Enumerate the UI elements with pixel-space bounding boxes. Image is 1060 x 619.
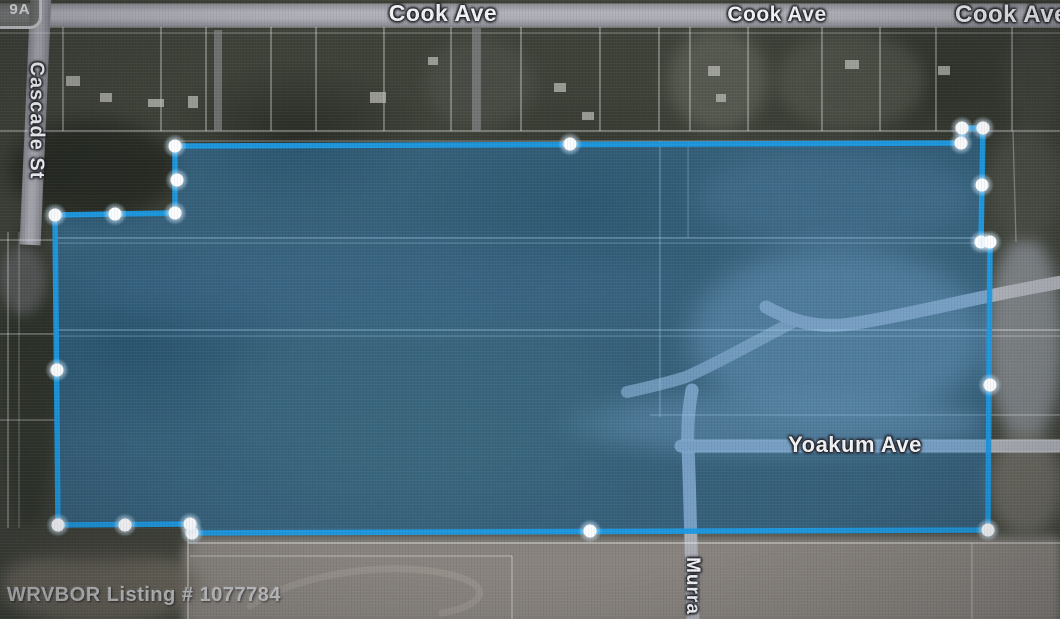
street-label-murray-partial: Murra: [681, 546, 703, 619]
route-shield-badge: 9A: [0, 0, 42, 29]
street-label-cook-ave-center: Cook Ave: [662, 3, 892, 27]
street-label-yoakum-ave: Yoakum Ave: [770, 432, 940, 458]
street-label-cook-ave-west: Cook Ave: [328, 0, 558, 27]
street-label-cook-ave-east: Cook Ave: [955, 1, 1060, 29]
listing-watermark: WRVBOR Listing # 1077784: [7, 584, 281, 607]
map-graphics: [0, 0, 1060, 619]
buildings: [66, 28, 950, 131]
property-boundary-fill: [55, 128, 990, 533]
property-boundary: [55, 128, 990, 533]
satellite-map: Cook Ave Cook Ave Cook Ave Cascade St Yo…: [0, 0, 1060, 619]
street-label-cascade-st: Cascade St: [25, 41, 48, 201]
